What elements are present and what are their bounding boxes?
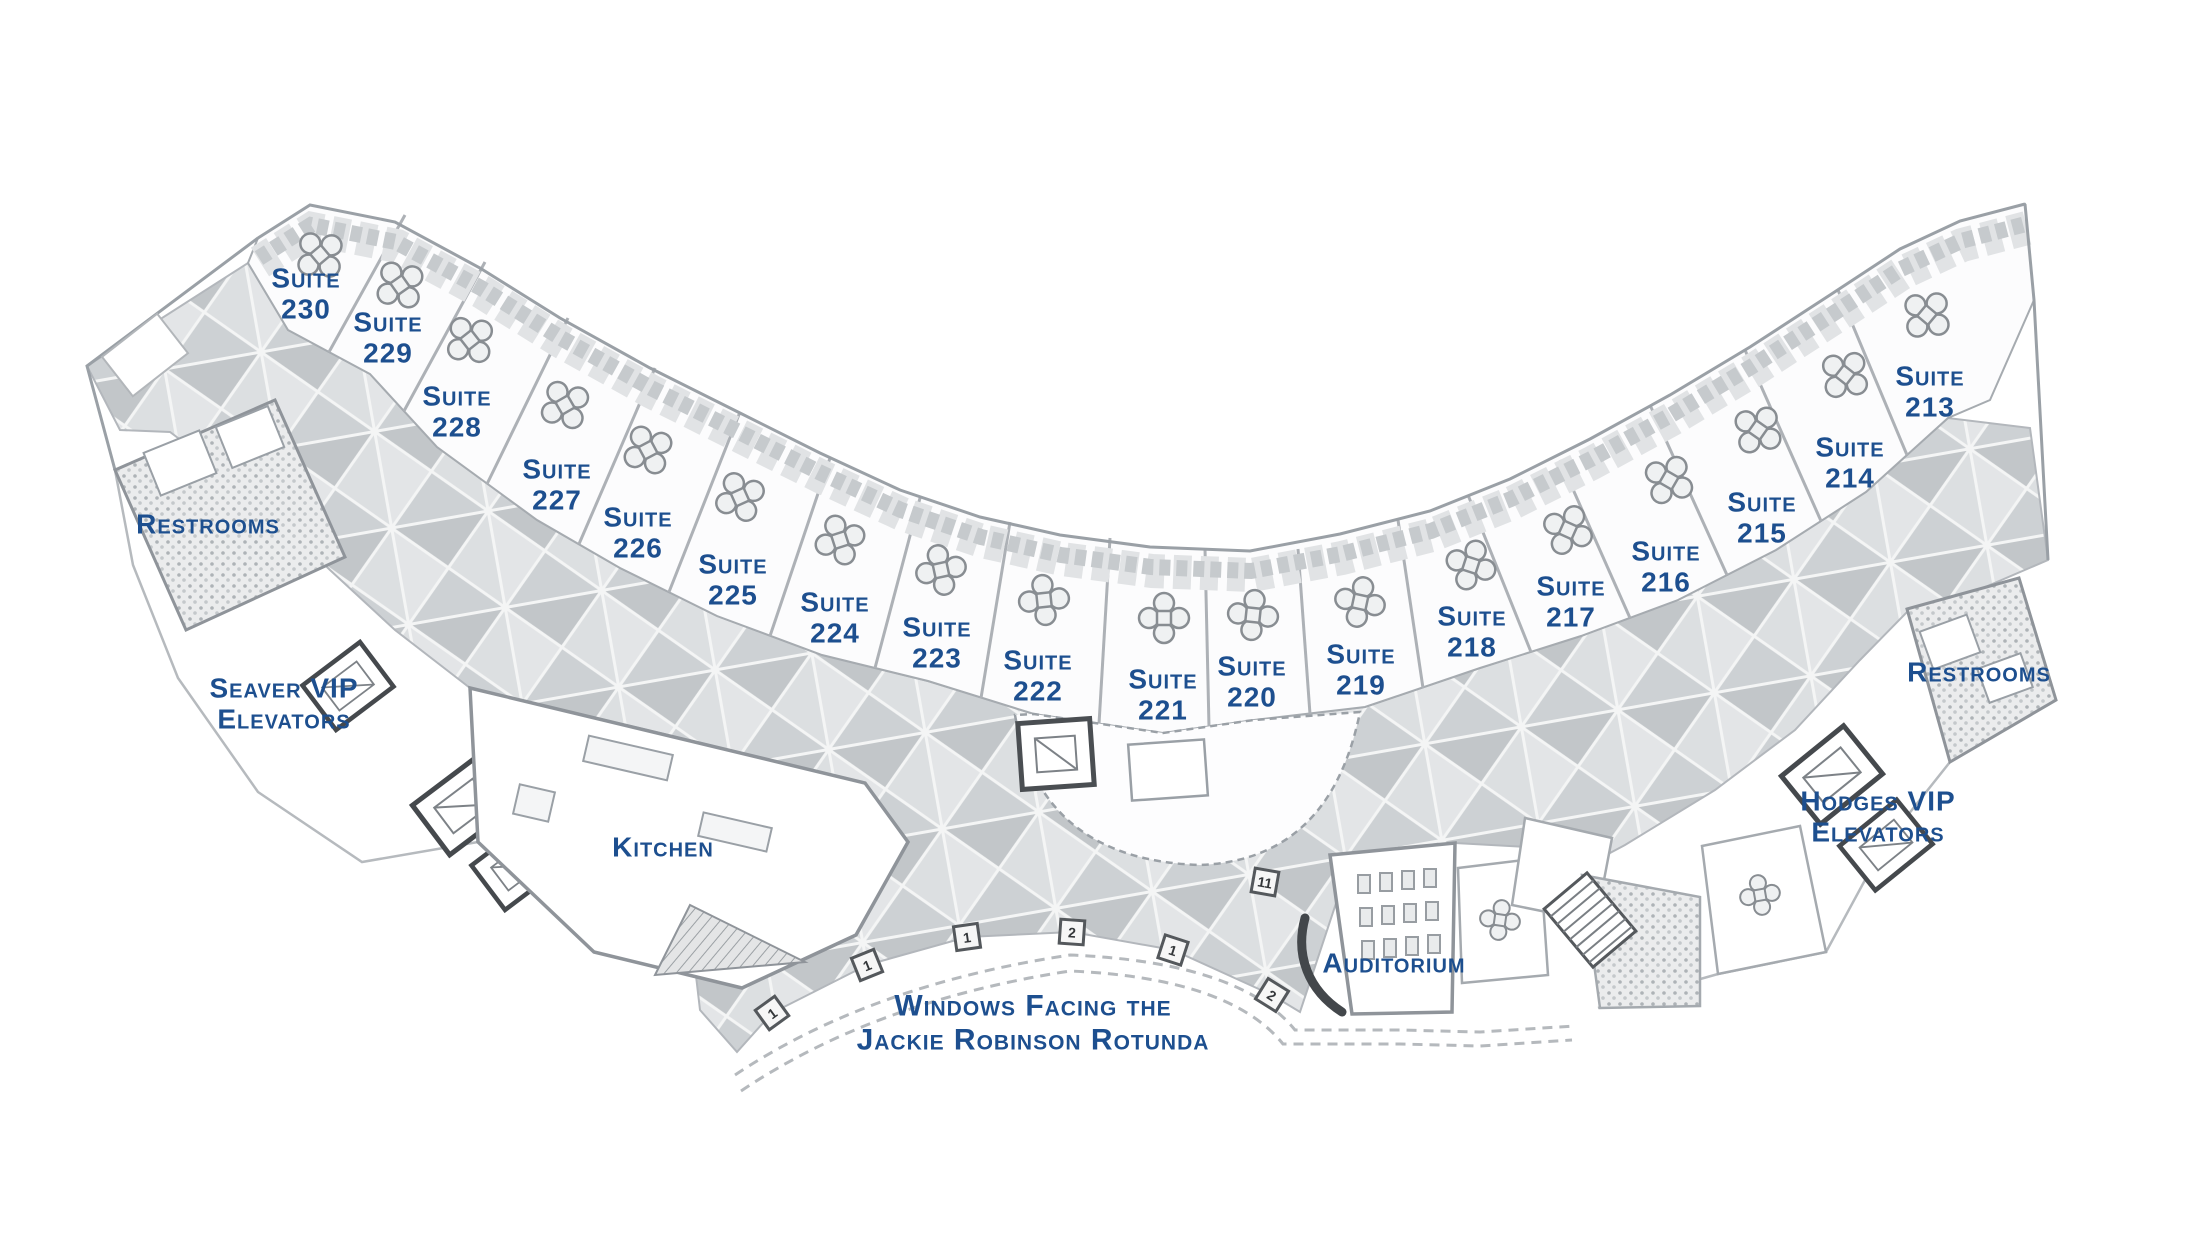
floor-plan-drawing [0,0,2208,1242]
restrooms-right-block [1907,578,2056,762]
center-service-shaft [1018,719,1094,790]
floor-plan-page: 11121211 Suite230Suite229Suite228Suite22… [0,0,2208,1242]
